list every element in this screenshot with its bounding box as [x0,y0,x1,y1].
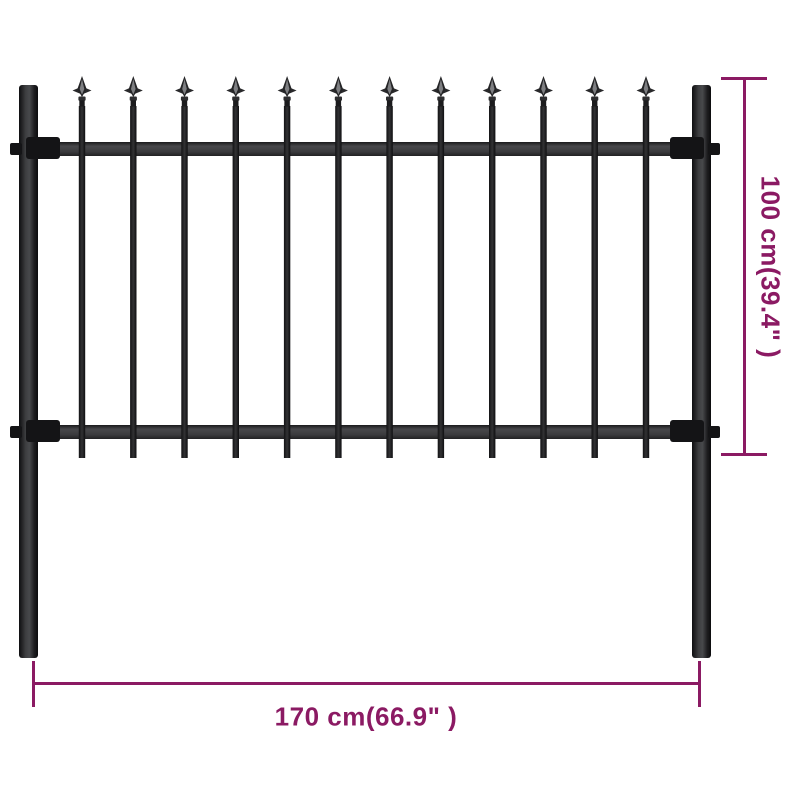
picket [278,76,297,458]
bracket-nub-top-left [10,143,22,155]
picket [175,76,194,458]
picket [534,76,553,458]
bracket-top-right [670,137,704,159]
width-dimension-label: 170 cm(66.9" ) [275,702,458,733]
bracket-top-left [26,137,60,159]
right-post [692,85,711,658]
picket [483,76,502,458]
product-image: 100 cm(39.4" ) 170 cm(66.9" ) [0,0,800,800]
picket [329,76,348,458]
width-dimension-cap-right [698,661,701,707]
height-dimension-cap-top [721,77,767,80]
left-post [19,85,38,658]
width-dimension-cap-left [32,661,35,707]
bracket-bottom-left [26,420,60,442]
height-dimension-line [743,78,746,455]
bracket-nub-bottom-left [10,426,22,438]
picket [637,76,656,458]
picket [124,76,143,458]
bracket-nub-bottom-right [708,426,720,438]
picket [380,76,399,458]
height-dimension-label: 100 cm(39.4" ) [755,176,786,359]
bracket-bottom-right [670,420,704,442]
picket [73,76,92,458]
picket [431,76,450,458]
fence-illustration [0,0,800,800]
picket [585,76,604,458]
picket [226,76,245,458]
height-dimension-cap-bottom [721,453,767,456]
rail-brackets [10,137,720,442]
pickets [73,76,656,458]
width-dimension-line [33,682,701,685]
bracket-nub-top-right [708,143,720,155]
